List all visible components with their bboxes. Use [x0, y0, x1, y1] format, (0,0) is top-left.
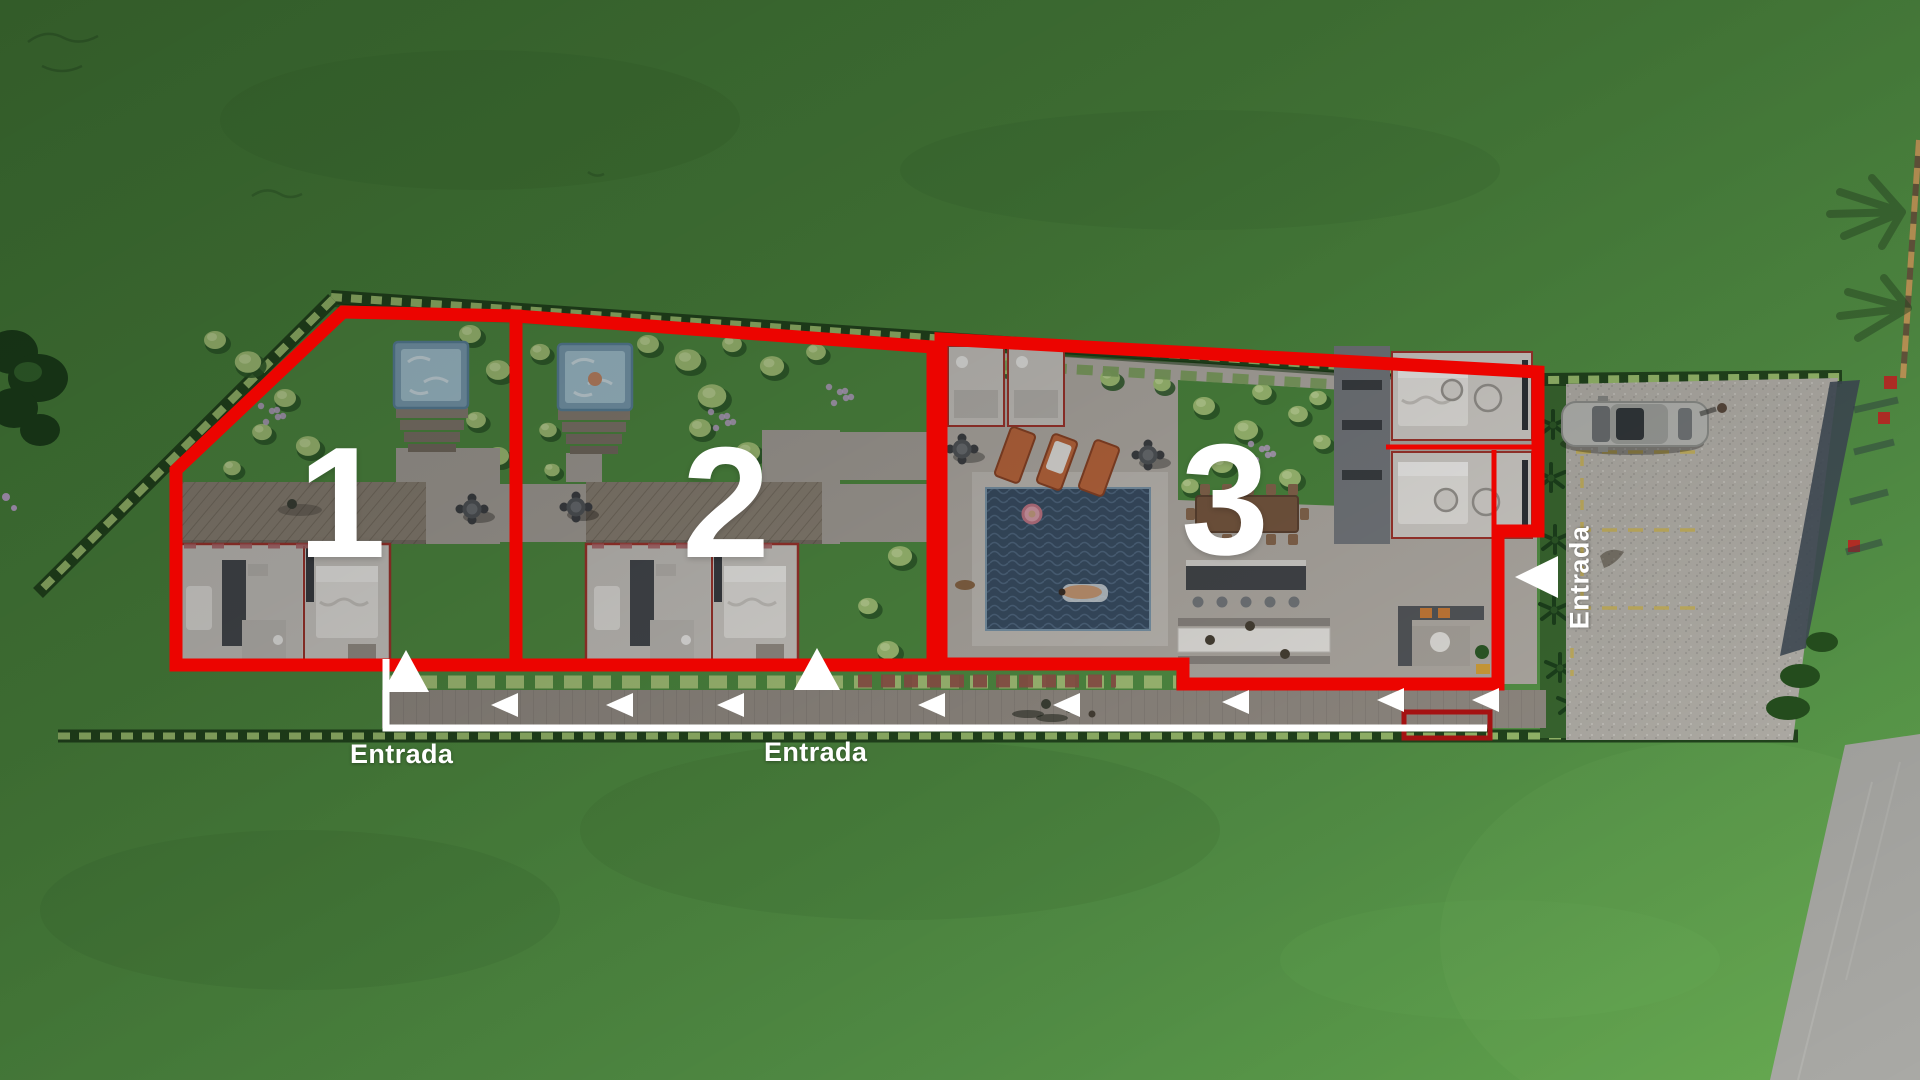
entrance-label-3-vertical: Entrada: [1564, 517, 1595, 639]
route-arrow-icon: [491, 693, 518, 717]
route-arrow-icon: [1222, 690, 1249, 714]
route-arrow-icon: [1053, 693, 1080, 717]
route-arrow-icon: [606, 693, 633, 717]
site-plan: 1 2 3 Entrada Entrada Entrada: [0, 0, 1920, 1080]
unit-1-label: 1: [282, 424, 402, 582]
unit-3-label: 3: [1165, 421, 1285, 579]
entrance-label-2: Entrada: [764, 737, 867, 768]
route-arrow-icon: [918, 693, 945, 717]
entrance-label-1: Entrada: [350, 739, 453, 770]
route-arrow-icon: [1377, 688, 1404, 712]
entrance-arrow-left-icon: [1515, 556, 1558, 598]
route-arrow-icon: [1472, 688, 1499, 712]
unit-2-label: 2: [666, 424, 786, 582]
route-arrow-icon: [717, 693, 744, 717]
